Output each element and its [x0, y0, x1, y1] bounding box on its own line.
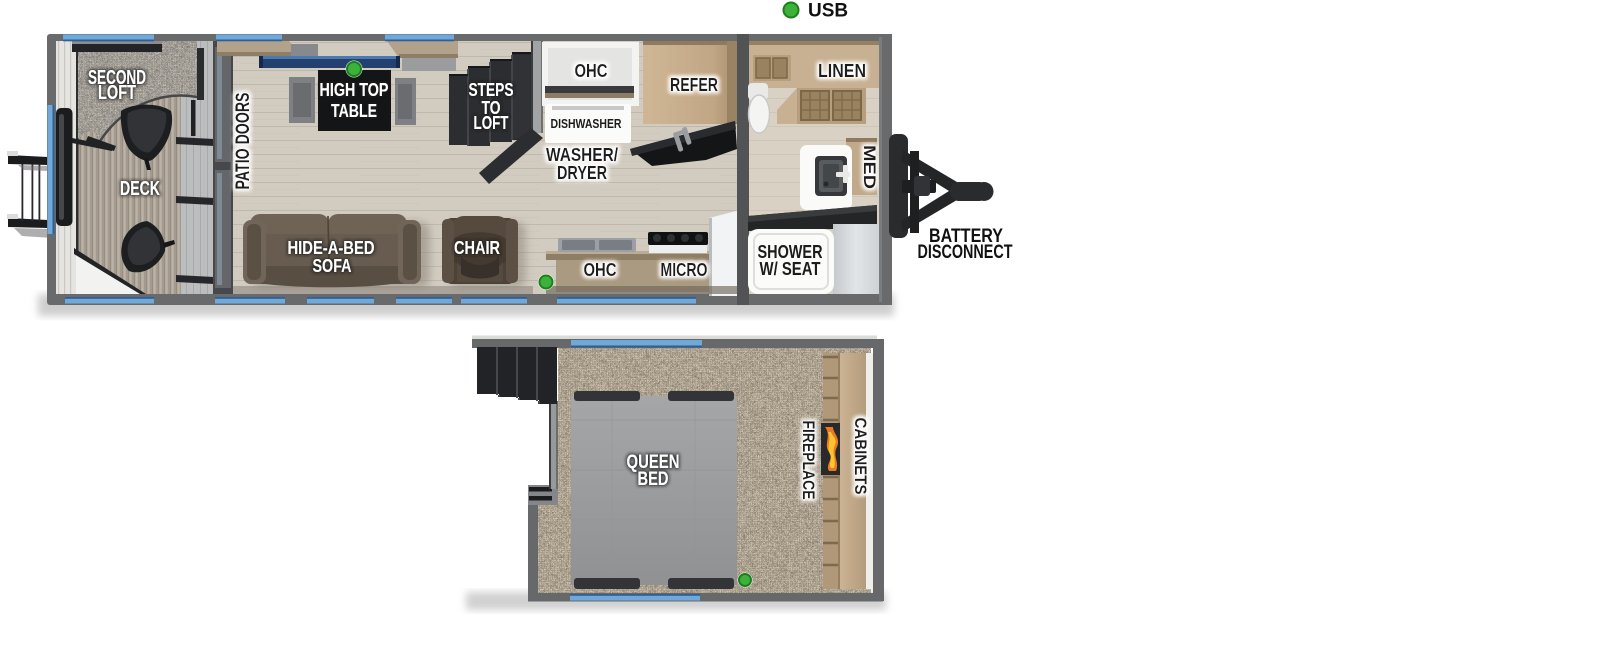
svg-text:USB: USB — [808, 1, 848, 22]
svg-text:MED: MED — [860, 145, 878, 189]
svg-text:LOFT: LOFT — [98, 81, 136, 104]
svg-text:W/ SEAT: W/ SEAT — [760, 259, 821, 279]
svg-text:TABLE: TABLE — [331, 101, 377, 121]
svg-text:HIGH TOP: HIGH TOP — [320, 80, 389, 100]
svg-text:DISHWASHER: DISHWASHER — [551, 117, 622, 131]
svg-text:SOFA: SOFA — [313, 255, 352, 276]
svg-text:OHC: OHC — [584, 260, 617, 280]
svg-text:OHC: OHC — [575, 61, 608, 81]
svg-text:BED: BED — [638, 469, 669, 490]
svg-text:DISCONNECT: DISCONNECT — [918, 242, 1013, 263]
svg-text:REFER: REFER — [670, 75, 718, 95]
svg-text:DECK: DECK — [120, 177, 160, 200]
svg-text:STEPS: STEPS — [469, 80, 514, 100]
svg-text:DRYER: DRYER — [557, 163, 607, 183]
svg-text:MICRO: MICRO — [661, 260, 708, 280]
svg-text:CHAIR: CHAIR — [454, 237, 500, 258]
svg-text:CABINETS: CABINETS — [851, 418, 869, 495]
svg-text:FIREPLACE: FIREPLACE — [799, 421, 817, 500]
svg-text:LOFT: LOFT — [474, 113, 509, 133]
svg-text:LINEN: LINEN — [818, 61, 866, 81]
svg-text:WASHER/: WASHER/ — [546, 145, 618, 165]
svg-text:PATIO DOORS: PATIO DOORS — [233, 93, 254, 190]
